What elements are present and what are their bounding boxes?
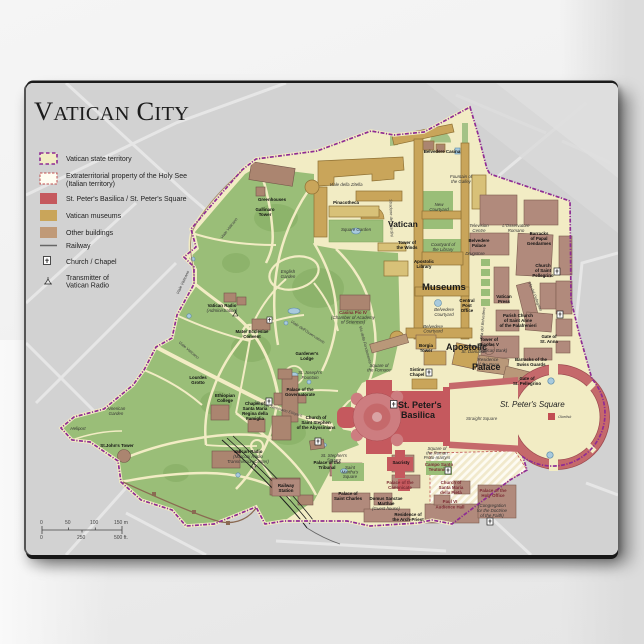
svg-text:Courtyard: Courtyard xyxy=(423,329,443,334)
svg-text:of the Palafrenieri: of the Palafrenieri xyxy=(499,323,536,328)
svg-text:Press: Press xyxy=(498,299,511,304)
svg-text:St. Damasus: St. Damasus xyxy=(461,349,487,354)
svg-text:0: 0 xyxy=(40,520,43,526)
svg-text:Courtyard: Courtyard xyxy=(429,207,449,212)
svg-text:150 m: 150 m xyxy=(114,520,128,526)
svg-text:Audience Hall: Audience Hall xyxy=(435,505,464,510)
svg-text:Courtyard: Courtyard xyxy=(434,312,454,317)
svg-text:Greenhouses: Greenhouses xyxy=(258,197,287,202)
svg-text:Railway: Railway xyxy=(66,243,91,250)
svg-text:Vatican museums: Vatican museums xyxy=(66,213,122,220)
svg-text:Church / Chapel: Church / Chapel xyxy=(66,259,117,266)
svg-text:the Galley: the Galley xyxy=(451,179,472,184)
svg-text:100: 100 xyxy=(90,520,99,526)
svg-text:Governatorate: Governatorate xyxy=(285,392,316,397)
svg-text:of the Faith): of the Faith) xyxy=(480,513,504,518)
svg-text:Convent: Convent xyxy=(243,334,261,339)
svg-text:Centre: Centre xyxy=(472,228,486,233)
svg-text:Belvedere Casina: Belvedere Casina xyxy=(424,149,461,154)
svg-text:the Library: the Library xyxy=(433,247,455,252)
svg-text:Pellegrino: Pellegrino xyxy=(532,273,554,278)
svg-text:Tower: Tower xyxy=(259,212,272,217)
svg-text:Tower: Tower xyxy=(420,348,433,353)
svg-text:50: 50 xyxy=(65,520,71,526)
svg-text:della Pietà: della Pietà xyxy=(440,490,462,495)
svg-text:Library: Library xyxy=(417,264,432,269)
svg-text:St. Anna: St. Anna xyxy=(540,339,558,344)
svg-text:Fountain: Fountain xyxy=(301,375,319,380)
svg-text:Chapel: Chapel xyxy=(410,372,425,377)
svg-text:the Winds: the Winds xyxy=(397,245,418,250)
svg-text:of Sciences): of Sciences) xyxy=(341,320,366,325)
svg-text:Romano: Romano xyxy=(508,228,525,233)
svg-text:St. Peter's: St. Peter's xyxy=(398,400,442,410)
svg-text:Swiss Guards: Swiss Guards xyxy=(516,362,546,367)
svg-text:Garden: Garden xyxy=(281,274,296,279)
svg-text:the Arch-Priest: the Arch-Priest xyxy=(392,517,424,522)
svg-text:Square: Square xyxy=(343,474,358,479)
svg-text:Square: Square xyxy=(327,458,342,463)
svg-text:Saint Charles: Saint Charles xyxy=(334,496,363,501)
svg-text:Viale della Zitella: Viale della Zitella xyxy=(329,182,363,187)
svg-text:of the Abyssinians: of the Abyssinians xyxy=(297,425,336,430)
svg-text:(Guest house): (Guest house) xyxy=(372,506,400,511)
svg-text:Proto-martyrs: Proto-martyrs xyxy=(424,455,451,460)
svg-text:Tribunal: Tribunal xyxy=(318,465,335,470)
svg-text:Transmitter of: Transmitter of xyxy=(66,275,109,282)
svg-text:of the Pope: of the Pope xyxy=(477,362,500,367)
svg-text:St. Peter's Basilica / St. Pet: St. Peter's Basilica / St. Peter's Squar… xyxy=(66,196,187,203)
svg-text:Paul VI: Paul VI xyxy=(443,499,458,504)
svg-text:St. Pellegrino: St. Pellegrino xyxy=(513,381,541,386)
svg-text:St. Peter's Square: St. Peter's Square xyxy=(500,400,565,409)
svg-text:Straight Square: Straight Square xyxy=(466,416,498,421)
svg-text:(Administration): (Administration) xyxy=(207,308,238,313)
svg-text:250: 250 xyxy=(77,535,86,541)
svg-text:St.John's Tower: St.John's Tower xyxy=(100,443,134,448)
svg-text:500 ft.: 500 ft. xyxy=(114,535,128,541)
svg-text:Station: Station xyxy=(279,488,294,493)
svg-text:Vatican state territory: Vatican state territory xyxy=(66,156,132,163)
svg-text:Canonicate: Canonicate xyxy=(388,485,412,490)
svg-text:Famiglia: Famiglia xyxy=(246,416,264,421)
svg-text:Office: Office xyxy=(461,308,474,313)
svg-text:Palace: Palace xyxy=(472,243,486,248)
svg-text:Vatican Radio: Vatican Radio xyxy=(66,283,109,290)
svg-text:Pinacotheca: Pinacotheca xyxy=(333,200,359,205)
svg-text:Square Garden: Square Garden xyxy=(341,227,372,232)
svg-text:Lodge: Lodge xyxy=(300,356,314,361)
svg-text:Sacristy: Sacristy xyxy=(392,460,410,465)
svg-text:Heliport: Heliport xyxy=(70,426,86,431)
svg-text:0: 0 xyxy=(40,535,43,541)
svg-text:Drugstore: Drugstore xyxy=(465,251,485,256)
svg-text:the Fornace: the Fornace xyxy=(367,368,391,373)
svg-text:Gendarmes: Gendarmes xyxy=(527,241,552,246)
svg-text:Museums: Museums xyxy=(422,282,466,293)
svg-text:College: College xyxy=(217,398,233,403)
svg-text:Basilica: Basilica xyxy=(401,410,436,420)
svg-text:Holy Office: Holy Office xyxy=(481,493,505,498)
svg-text:Other buildings: Other buildings xyxy=(66,230,114,237)
svg-text:Transmission Center): Transmission Center) xyxy=(227,459,269,464)
svg-text:(Italian territory): (Italian territory) xyxy=(66,181,115,188)
svg-text:Grotto: Grotto xyxy=(191,380,205,385)
svg-text:Obelisk: Obelisk xyxy=(558,414,572,419)
svg-text:Extraterritorial property of t: Extraterritorial property of the Holy Se… xyxy=(66,173,187,180)
svg-text:Garden: Garden xyxy=(109,411,124,416)
